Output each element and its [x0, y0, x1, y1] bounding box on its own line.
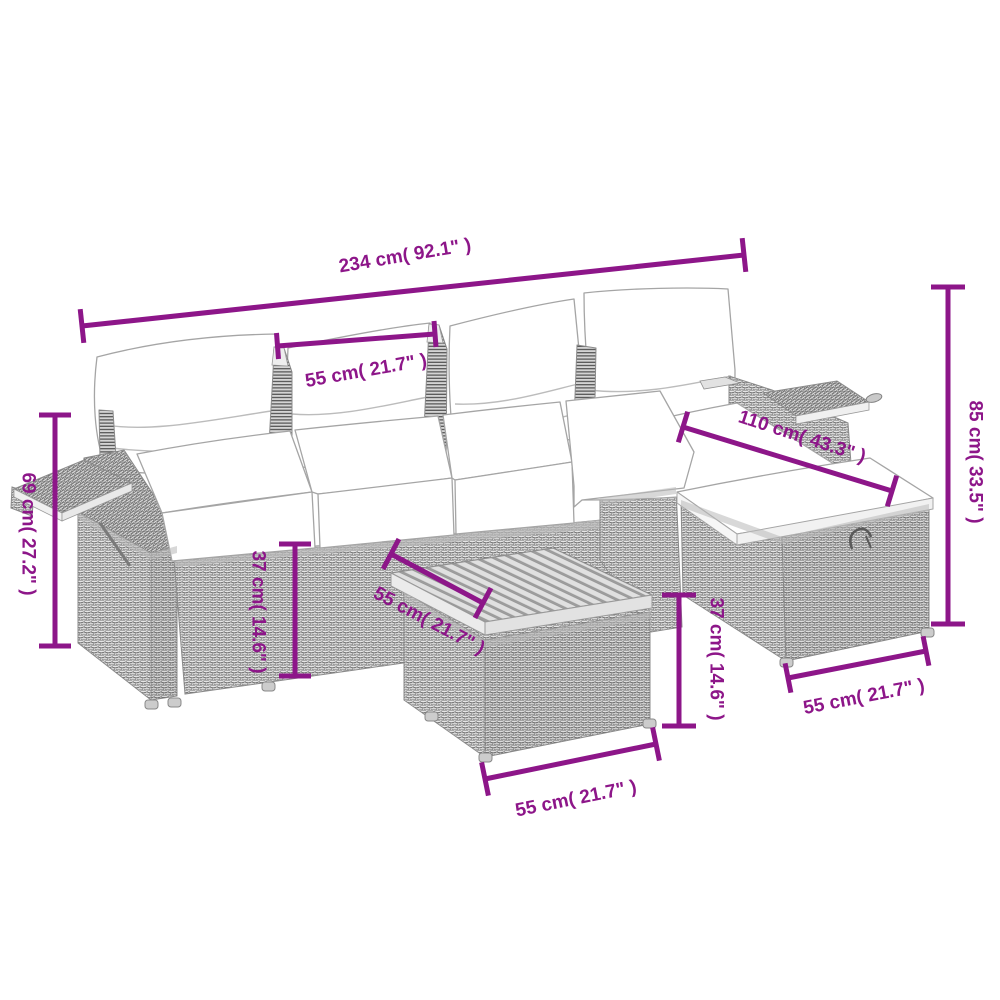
svg-text:37 cm( 14.6" ): 37 cm( 14.6" ) [248, 550, 269, 673]
svg-text:69 cm( 27.2" ): 69 cm( 27.2" ) [18, 472, 39, 595]
svg-text:85 cm( 33.5" ): 85 cm( 33.5" ) [965, 400, 986, 523]
svg-text:37 cm( 14.6" ): 37 cm( 14.6" ) [706, 597, 727, 720]
